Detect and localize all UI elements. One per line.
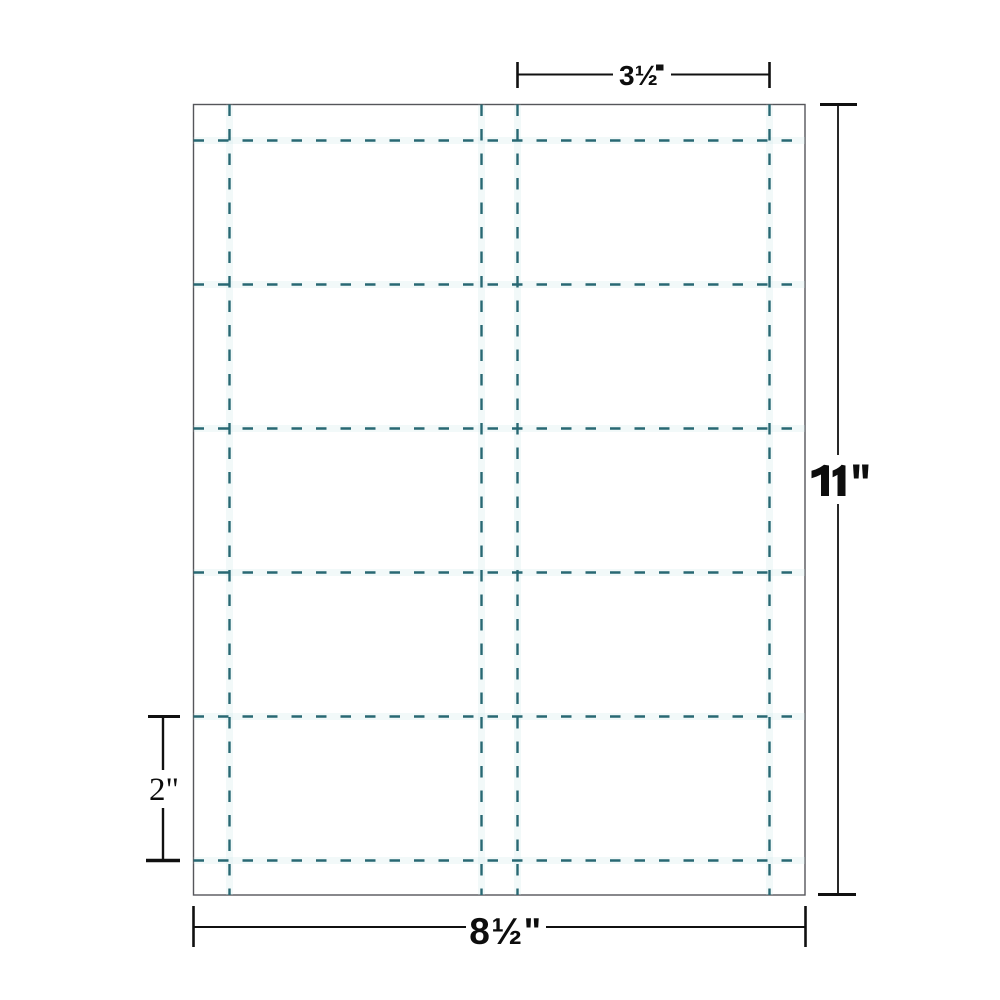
svg-text:3½: 3½ [619, 60, 658, 91]
svg-text:8½": 8½" [469, 911, 542, 952]
svg-text:2": 2" [149, 772, 179, 808]
